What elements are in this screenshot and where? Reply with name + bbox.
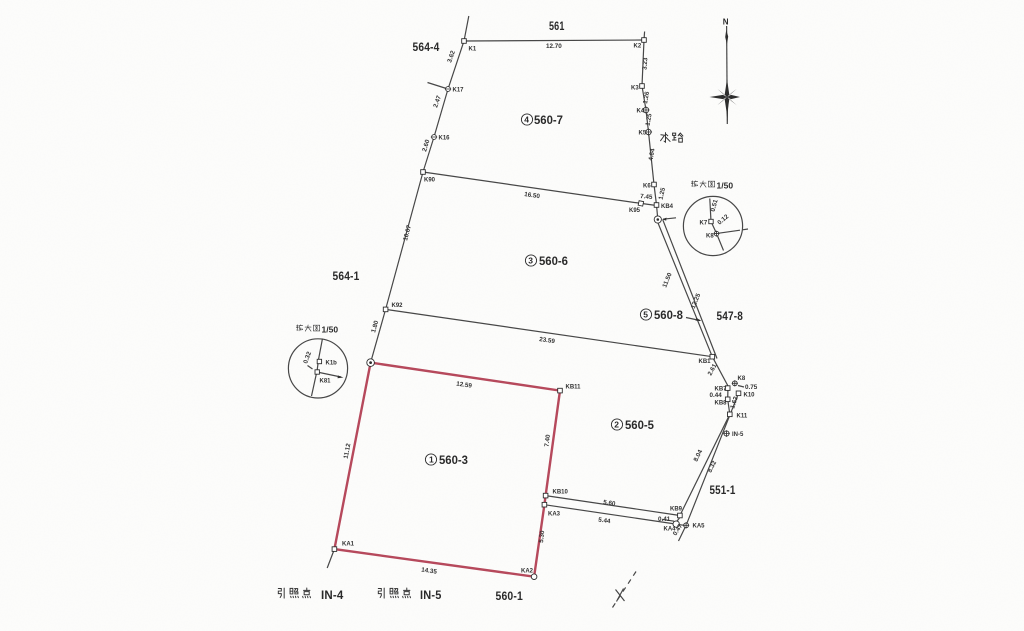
svg-text:K2: K2 <box>634 44 642 50</box>
svg-text:KB10: KB10 <box>553 490 569 496</box>
svg-text:KB8: KB8 <box>715 401 728 407</box>
svg-text:KA1: KA1 <box>342 542 355 548</box>
svg-text:1/50: 1/50 <box>717 181 734 191</box>
svg-text:5.30: 5.30 <box>538 530 546 543</box>
svg-text:0.75: 0.75 <box>745 384 758 391</box>
svg-text:KB9: KB9 <box>670 507 683 513</box>
svg-text:K8: K8 <box>706 234 714 240</box>
svg-text:KA3: KA3 <box>548 512 561 518</box>
svg-text:560-5: 560-5 <box>625 418 654 432</box>
svg-text:K10: K10 <box>744 393 756 399</box>
svg-text:K90: K90 <box>424 178 436 184</box>
svg-text:IN-5: IN-5 <box>732 432 744 438</box>
svg-text:K1b: K1b <box>326 361 338 367</box>
svg-text:560-1: 560-1 <box>496 589 524 603</box>
svg-text:560-7: 560-7 <box>534 113 563 127</box>
svg-text:K11: K11 <box>737 414 748 420</box>
svg-text:K92: K92 <box>392 303 404 309</box>
svg-text:564-4: 564-4 <box>413 40 440 54</box>
svg-text:K7: K7 <box>700 221 708 227</box>
svg-text:1: 1 <box>429 455 434 465</box>
svg-text:K81: K81 <box>320 379 332 385</box>
svg-text:K95: K95 <box>629 208 641 214</box>
svg-text:5: 5 <box>643 310 648 320</box>
svg-text:2: 2 <box>614 420 619 430</box>
svg-text:547-8: 547-8 <box>717 309 744 323</box>
svg-text:560-6: 560-6 <box>539 254 568 268</box>
svg-text:KA5: KA5 <box>693 524 706 530</box>
svg-text:561: 561 <box>549 19 565 33</box>
svg-text:K1: K1 <box>469 47 477 53</box>
svg-text:K17: K17 <box>453 88 465 94</box>
svg-text:560-8: 560-8 <box>654 308 683 322</box>
svg-text:K8: K8 <box>738 376 746 382</box>
svg-text:K6: K6 <box>643 184 651 190</box>
svg-text:N: N <box>723 18 729 27</box>
svg-text:3.23: 3.23 <box>642 57 650 70</box>
svg-text:IN-5: IN-5 <box>420 588 442 602</box>
svg-text:IN-4: IN-4 <box>321 588 344 602</box>
svg-text:KB4: KB4 <box>661 204 674 210</box>
svg-text:KB11: KB11 <box>566 385 582 391</box>
svg-text:564-1: 564-1 <box>333 269 360 283</box>
svg-text:4: 4 <box>524 115 529 125</box>
svg-text:0.41: 0.41 <box>658 516 671 523</box>
svg-text:K16: K16 <box>439 136 451 142</box>
svg-text:KB1: KB1 <box>699 359 712 365</box>
svg-text:KA2: KA2 <box>521 569 534 575</box>
svg-text:551-1: 551-1 <box>710 483 736 497</box>
svg-text:3: 3 <box>528 256 533 266</box>
svg-text:K4: K4 <box>637 109 645 115</box>
svg-text:7.45: 7.45 <box>640 193 653 201</box>
svg-text:12.70: 12.70 <box>546 43 562 50</box>
svg-text:K5: K5 <box>639 131 647 137</box>
svg-text:1/50: 1/50 <box>322 325 339 335</box>
svg-text:560-3: 560-3 <box>439 453 468 467</box>
svg-text:0.44: 0.44 <box>710 392 723 399</box>
svg-text:K3: K3 <box>631 86 639 92</box>
